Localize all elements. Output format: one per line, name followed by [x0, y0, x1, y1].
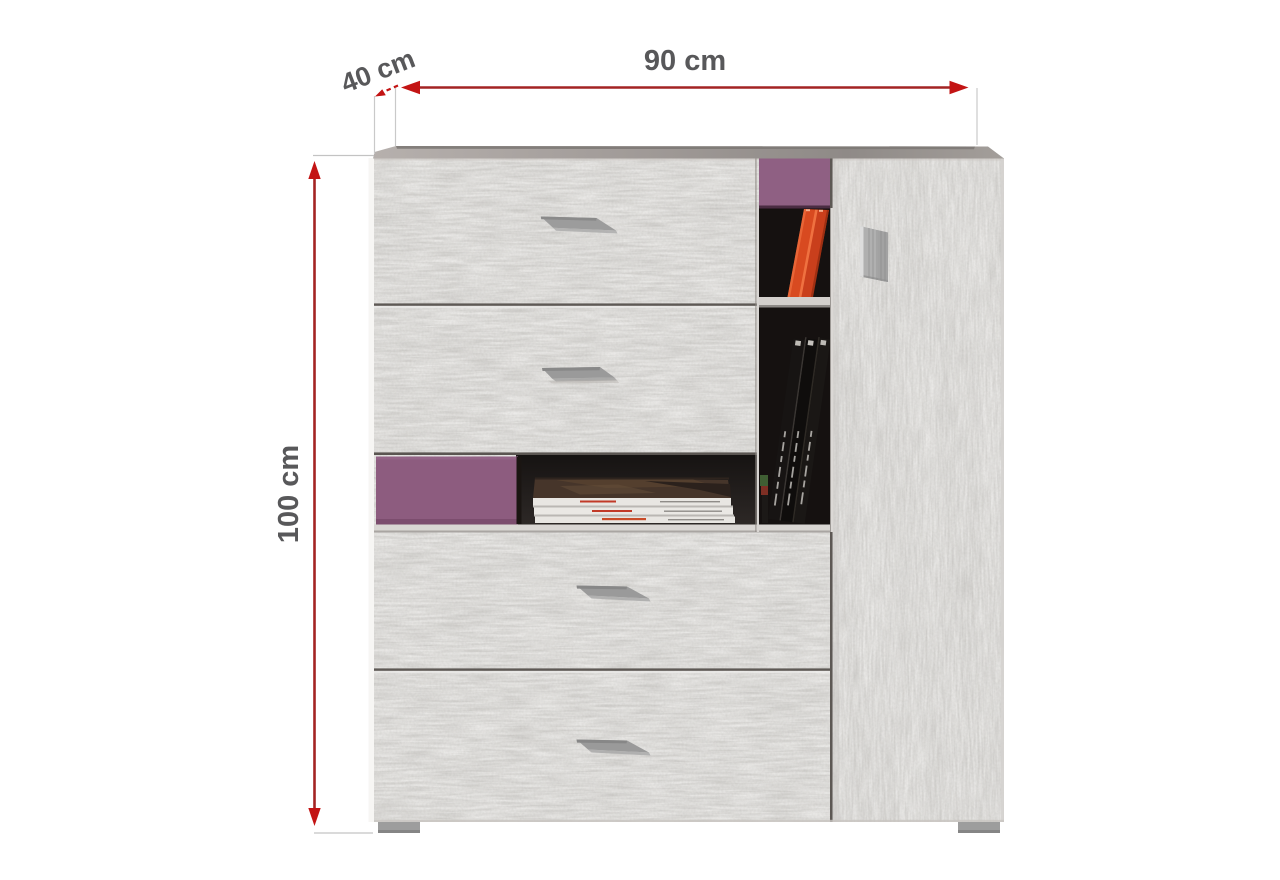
svg-text:100 cm: 100 cm: [273, 445, 305, 543]
svg-text:90 cm: 90 cm: [644, 45, 726, 77]
